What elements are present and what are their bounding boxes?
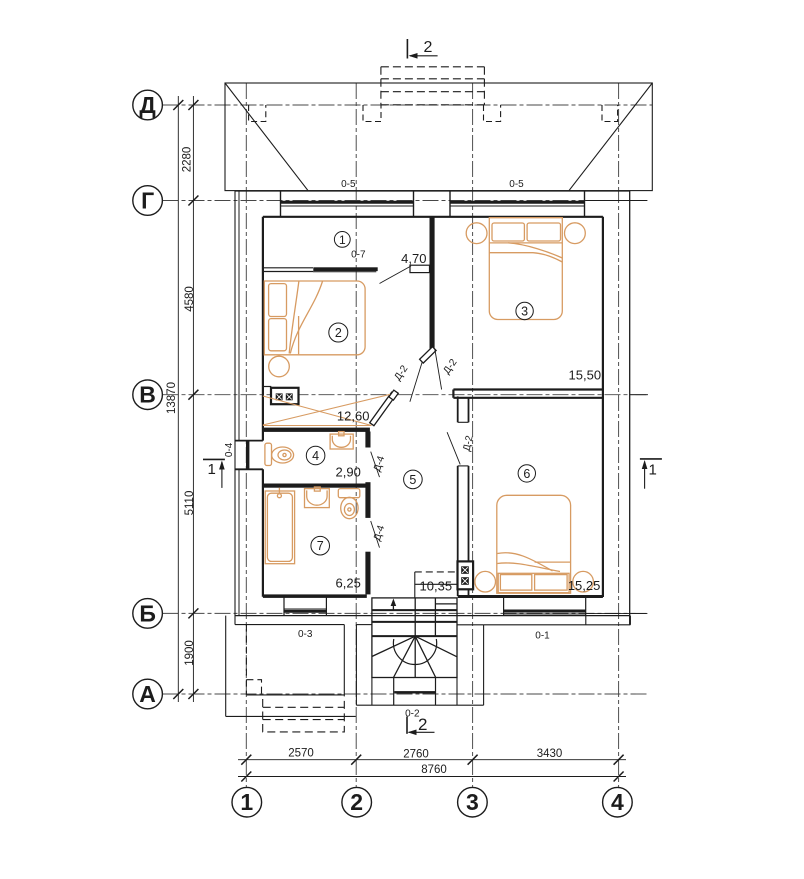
svg-text:2570: 2570 xyxy=(288,748,314,760)
svg-text:1900: 1900 xyxy=(184,640,196,666)
svg-text:6,25: 6,25 xyxy=(336,576,361,591)
svg-text:2,90: 2,90 xyxy=(336,464,361,479)
svg-text:0-5: 0-5 xyxy=(341,179,356,190)
svg-text:6: 6 xyxy=(523,467,530,481)
svg-text:1: 1 xyxy=(649,462,657,479)
svg-text:8760: 8760 xyxy=(421,764,447,776)
svg-text:В: В xyxy=(139,382,156,408)
svg-text:0-5: 0-5 xyxy=(509,179,524,190)
svg-text:2: 2 xyxy=(418,715,427,734)
svg-text:0-7: 0-7 xyxy=(351,250,366,261)
svg-text:4,70: 4,70 xyxy=(401,251,426,266)
svg-text:2760: 2760 xyxy=(403,749,429,761)
svg-text:Д: Д xyxy=(139,92,155,118)
svg-text:1: 1 xyxy=(339,233,346,247)
svg-text:15,50: 15,50 xyxy=(569,368,602,383)
svg-text:3: 3 xyxy=(521,305,528,319)
svg-text:2: 2 xyxy=(424,39,433,56)
svg-text:1: 1 xyxy=(240,789,253,815)
svg-text:15,25: 15,25 xyxy=(568,578,601,593)
svg-text:0-3: 0-3 xyxy=(298,629,313,640)
svg-text:4: 4 xyxy=(312,449,319,463)
svg-text:2: 2 xyxy=(350,789,363,815)
svg-text:10,35: 10,35 xyxy=(420,579,453,594)
svg-text:7: 7 xyxy=(317,539,324,553)
svg-text:4: 4 xyxy=(611,789,624,815)
svg-text:5: 5 xyxy=(409,473,416,487)
svg-text:1: 1 xyxy=(208,461,216,478)
svg-text:А: А xyxy=(139,681,156,707)
svg-text:2280: 2280 xyxy=(182,147,194,173)
svg-text:3430: 3430 xyxy=(537,748,563,760)
svg-text:3: 3 xyxy=(466,789,479,815)
svg-text:0-4: 0-4 xyxy=(224,442,235,457)
svg-text:12,60: 12,60 xyxy=(337,409,370,424)
svg-text:5110: 5110 xyxy=(184,491,196,516)
svg-text:Г: Г xyxy=(141,188,154,214)
svg-text:0-1: 0-1 xyxy=(535,630,550,641)
svg-text:13870: 13870 xyxy=(166,382,178,414)
svg-text:4580: 4580 xyxy=(184,286,196,312)
svg-text:2: 2 xyxy=(335,326,342,340)
svg-text:Б: Б xyxy=(139,600,156,626)
